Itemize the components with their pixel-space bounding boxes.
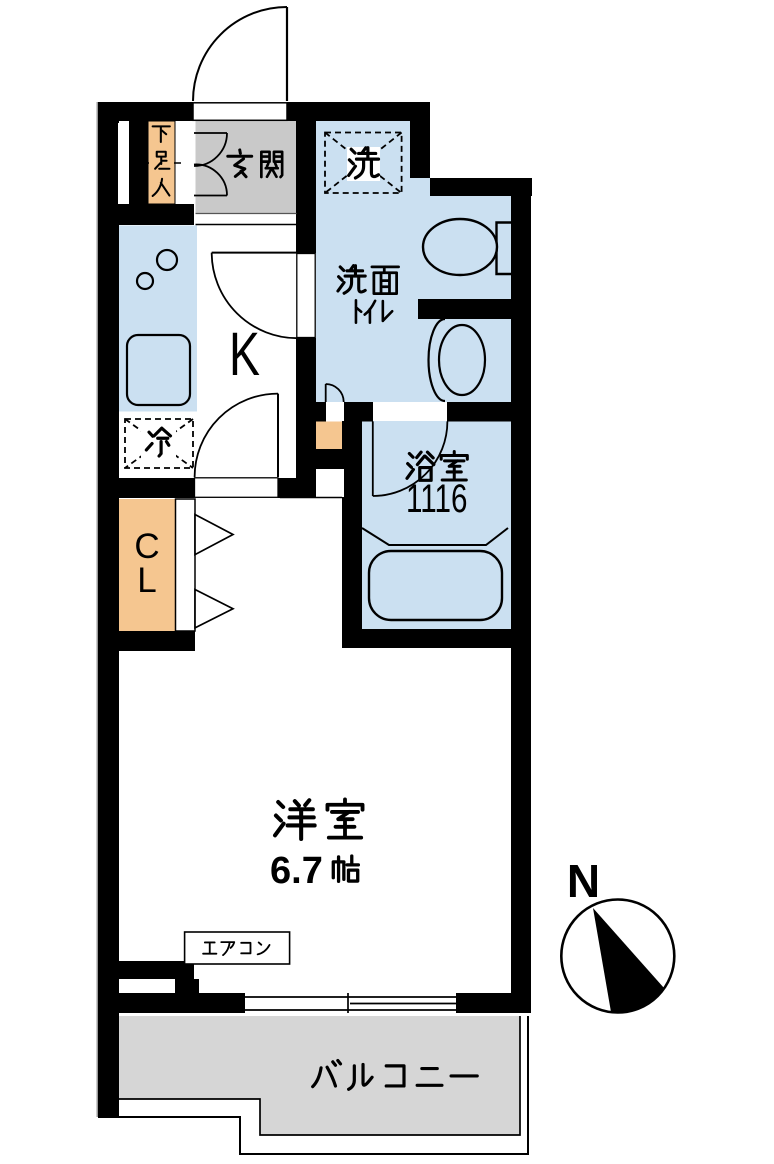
svg-text:N: N — [567, 855, 600, 907]
svg-text:L: L — [137, 561, 156, 600]
svg-text:K: K — [229, 321, 260, 389]
svg-text:6.7: 6.7 — [270, 850, 323, 892]
svg-text:1116: 1116 — [406, 477, 467, 521]
